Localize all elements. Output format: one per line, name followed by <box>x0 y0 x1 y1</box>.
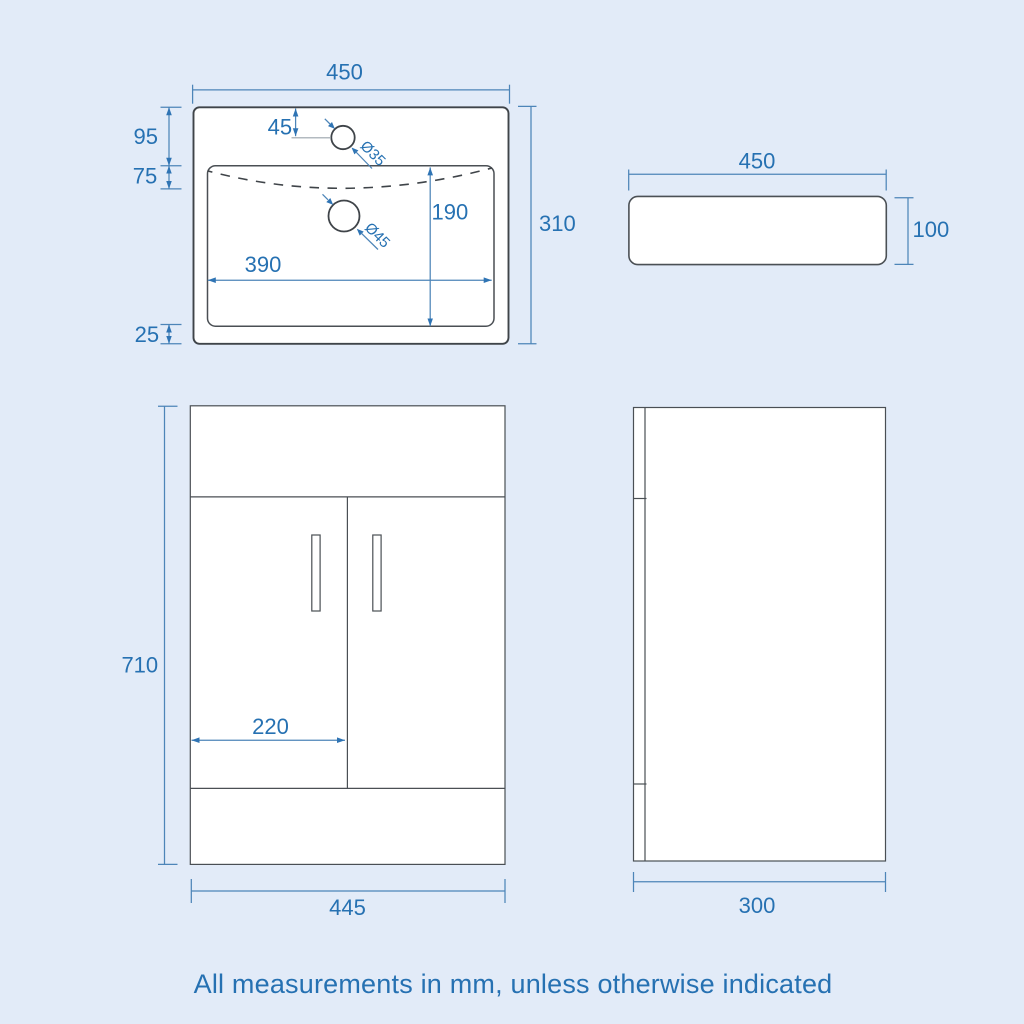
svg-text:310: 310 <box>539 211 576 236</box>
svg-text:445: 445 <box>329 895 366 920</box>
svg-text:45: 45 <box>268 114 292 139</box>
svg-text:All measurements in mm, unless: All measurements in mm, unless otherwise… <box>194 969 833 999</box>
svg-text:100: 100 <box>913 217 950 242</box>
svg-text:300: 300 <box>739 893 776 918</box>
svg-text:390: 390 <box>245 252 282 277</box>
svg-text:450: 450 <box>326 60 363 85</box>
svg-text:220: 220 <box>252 714 289 739</box>
svg-text:450: 450 <box>739 149 776 174</box>
svg-text:95: 95 <box>134 124 158 149</box>
svg-text:75: 75 <box>133 164 157 189</box>
svg-text:25: 25 <box>135 322 159 347</box>
svg-text:710: 710 <box>121 653 158 678</box>
svg-text:190: 190 <box>432 199 469 224</box>
